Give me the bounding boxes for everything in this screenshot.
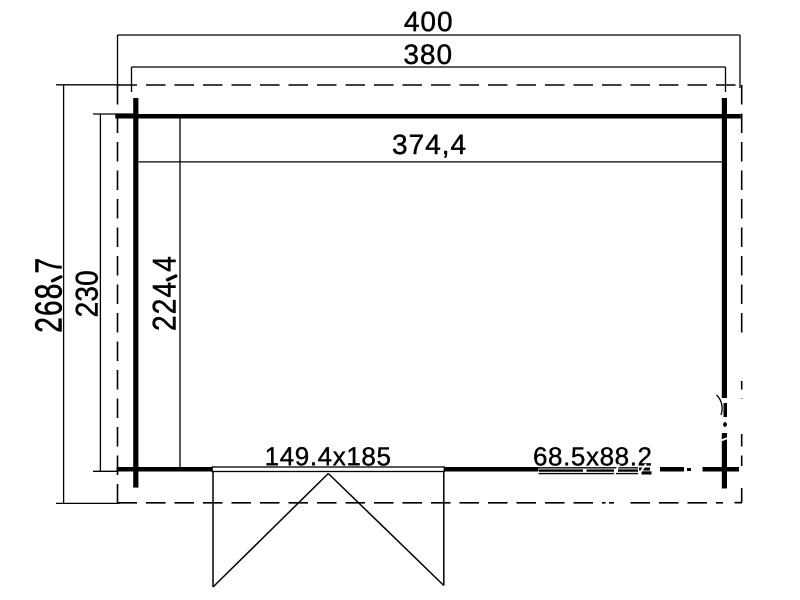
svg-text:380: 380 [403,39,453,70]
svg-text:230: 230 [70,270,105,317]
svg-text:400: 400 [404,6,454,37]
svg-text:68.5x88.2: 68.5x88.2 [533,441,653,471]
svg-text:149.4x185: 149.4x185 [265,441,392,471]
svg-text:374,4: 374,4 [392,129,467,160]
